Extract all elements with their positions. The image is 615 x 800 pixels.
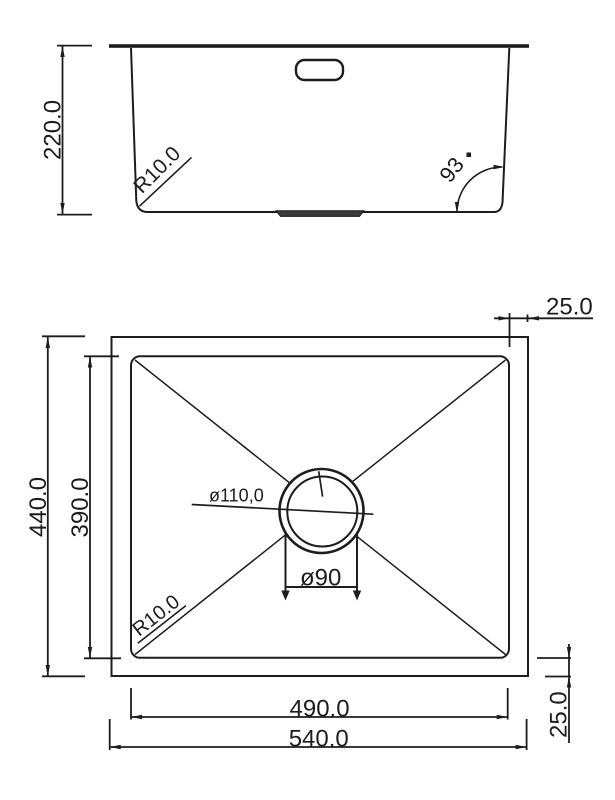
svg-text:490.0: 490.0 <box>290 696 350 723</box>
svg-text:ø110,0: ø110,0 <box>209 486 264 506</box>
svg-text:390.0: 390.0 <box>67 477 94 537</box>
svg-text:440.0: 440.0 <box>25 477 52 537</box>
svg-text:540.0: 540.0 <box>289 726 349 753</box>
svg-text:25.0: 25.0 <box>546 294 593 321</box>
svg-text:25.0: 25.0 <box>546 691 573 738</box>
svg-text:220.0: 220.0 <box>40 100 67 160</box>
svg-text:ø90: ø90 <box>300 565 341 592</box>
